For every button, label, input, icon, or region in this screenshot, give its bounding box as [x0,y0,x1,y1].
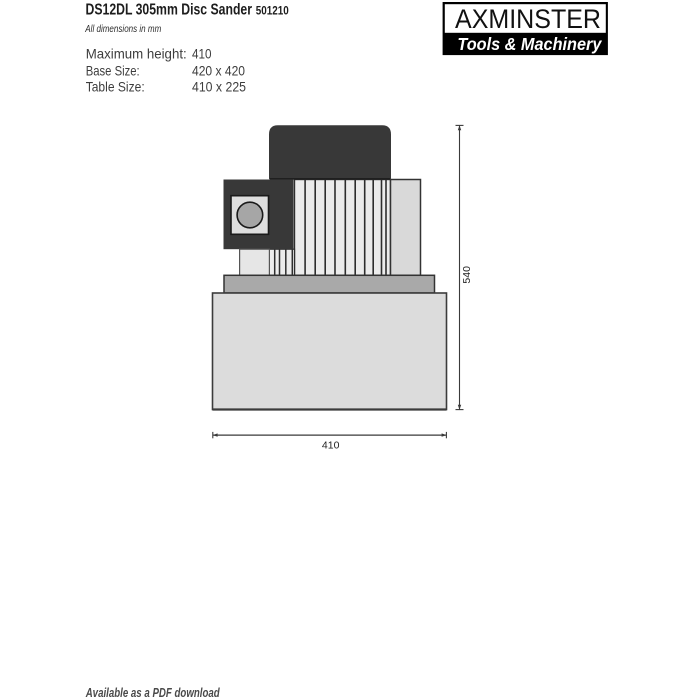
svg-text:Table Size:: Table Size: [86,79,145,95]
svg-text:Tools & Machinery: Tools & Machinery [457,34,602,54]
svg-text:DS12DL 305mm Disc Sander: DS12DL 305mm Disc Sander [86,2,253,19]
svg-text:Base Size:: Base Size: [86,62,140,78]
svg-text:Maximum height:: Maximum height: [86,46,187,62]
svg-text:501210: 501210 [256,6,289,18]
svg-text:AXMINSTER: AXMINSTER [455,4,601,34]
svg-text:540: 540 [461,266,473,284]
svg-text:420 x 420: 420 x 420 [192,62,245,78]
svg-text:Available as a PDF download: Available as a PDF download [85,685,221,700]
svg-text:410 x 225: 410 x 225 [192,79,246,95]
svg-text:410: 410 [322,440,340,452]
svg-text:All dimensions in mm: All dimensions in mm [85,23,162,35]
svg-text:410: 410 [192,46,212,62]
